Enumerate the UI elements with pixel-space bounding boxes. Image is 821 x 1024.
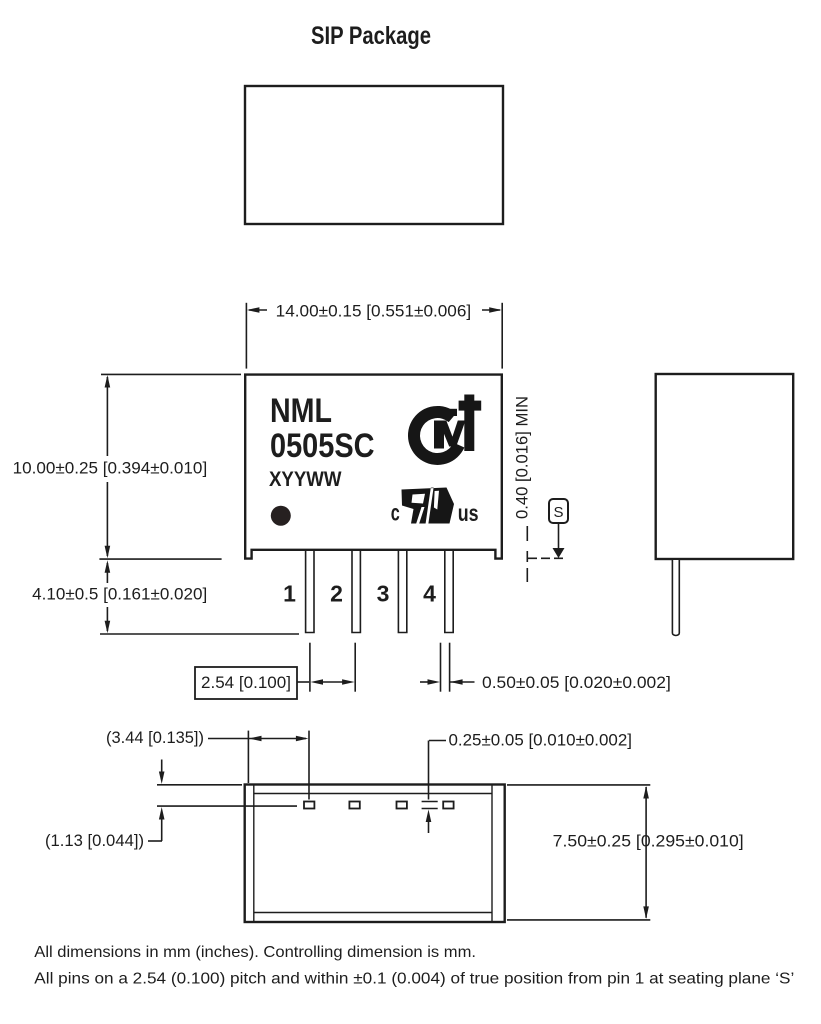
svg-text:0505SC: 0505SC: [270, 427, 375, 465]
svg-text:2.54 [0.100]: 2.54 [0.100]: [201, 673, 291, 692]
svg-text:10.00±0.25 [0.394±0.010]: 10.00±0.25 [0.394±0.010]: [13, 458, 208, 477]
svg-text:0.50±0.05 [0.020±0.002]: 0.50±0.05 [0.020±0.002]: [482, 673, 671, 692]
svg-text:4: 4: [423, 581, 436, 607]
svg-text:NML: NML: [270, 392, 332, 430]
svg-text:0.25±0.05 [0.010±0.002]: 0.25±0.05 [0.010±0.002]: [449, 731, 633, 750]
svg-text:S: S: [553, 504, 563, 521]
svg-text:(3.44 [0.135]): (3.44 [0.135]): [106, 728, 204, 747]
svg-text:XYYWW: XYYWW: [269, 468, 342, 491]
svg-text:3: 3: [377, 581, 390, 607]
svg-text:SIP Package: SIP Package: [311, 22, 431, 50]
svg-text:2: 2: [330, 581, 343, 607]
svg-text:All pins on a 2.54 (0.100) pit: All pins on a 2.54 (0.100) pitch and wit…: [34, 971, 794, 988]
svg-text:(1.13 [0.044]): (1.13 [0.044]): [45, 831, 144, 850]
svg-text:0.40 [0.016] MIN: 0.40 [0.016] MIN: [512, 396, 531, 519]
svg-text:c: c: [391, 499, 400, 525]
svg-text:us: us: [458, 500, 479, 526]
svg-text:1: 1: [283, 581, 296, 607]
svg-text:7.50±0.25 [0.295±0.010]: 7.50±0.25 [0.295±0.010]: [553, 832, 744, 851]
svg-text:All dimensions in mm (inches).: All dimensions in mm (inches). Controlli…: [34, 944, 476, 961]
svg-text:4.10±0.5 [0.161±0.020]: 4.10±0.5 [0.161±0.020]: [32, 585, 207, 604]
svg-text:14.00±0.15 [0.551±0.006]: 14.00±0.15 [0.551±0.006]: [276, 302, 472, 321]
